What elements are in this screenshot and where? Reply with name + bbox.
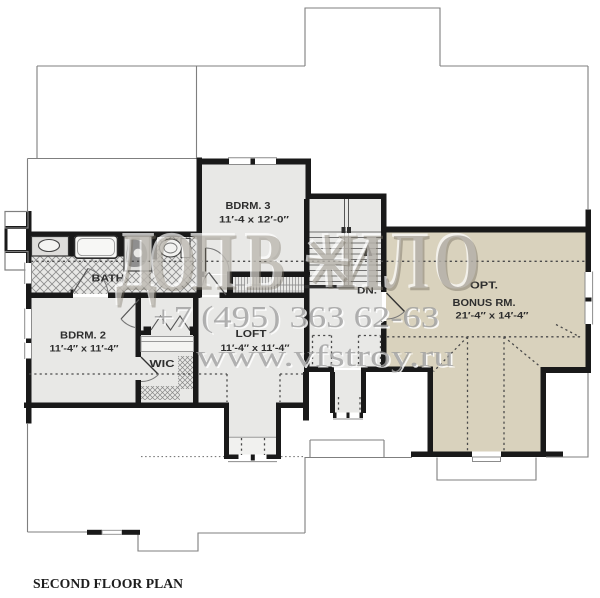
svg-text:О: О	[435, 217, 481, 309]
svg-text:www.vfstroy.ru: www.vfstroy.ru	[196, 338, 454, 373]
svg-text:Л: Л	[386, 217, 431, 309]
svg-text:В: В	[246, 217, 286, 309]
svg-text:П: П	[191, 217, 237, 309]
svg-text:WIC: WIC	[150, 359, 175, 370]
svg-text:BDRM. 3: BDRM. 3	[226, 201, 272, 212]
svg-text:+7 (495) 363 62-63: +7 (495) 363 62-63	[153, 299, 439, 334]
svg-text:21′-4″ x 14′-4″: 21′-4″ x 14′-4″	[456, 311, 530, 321]
svg-text:BDRM. 2: BDRM. 2	[60, 331, 107, 342]
svg-text:11′-4″ x 11′-4″: 11′-4″ x 11′-4″	[50, 344, 120, 354]
svg-text:SECOND FLOOR PLAN: SECOND FLOOR PLAN	[33, 577, 183, 592]
